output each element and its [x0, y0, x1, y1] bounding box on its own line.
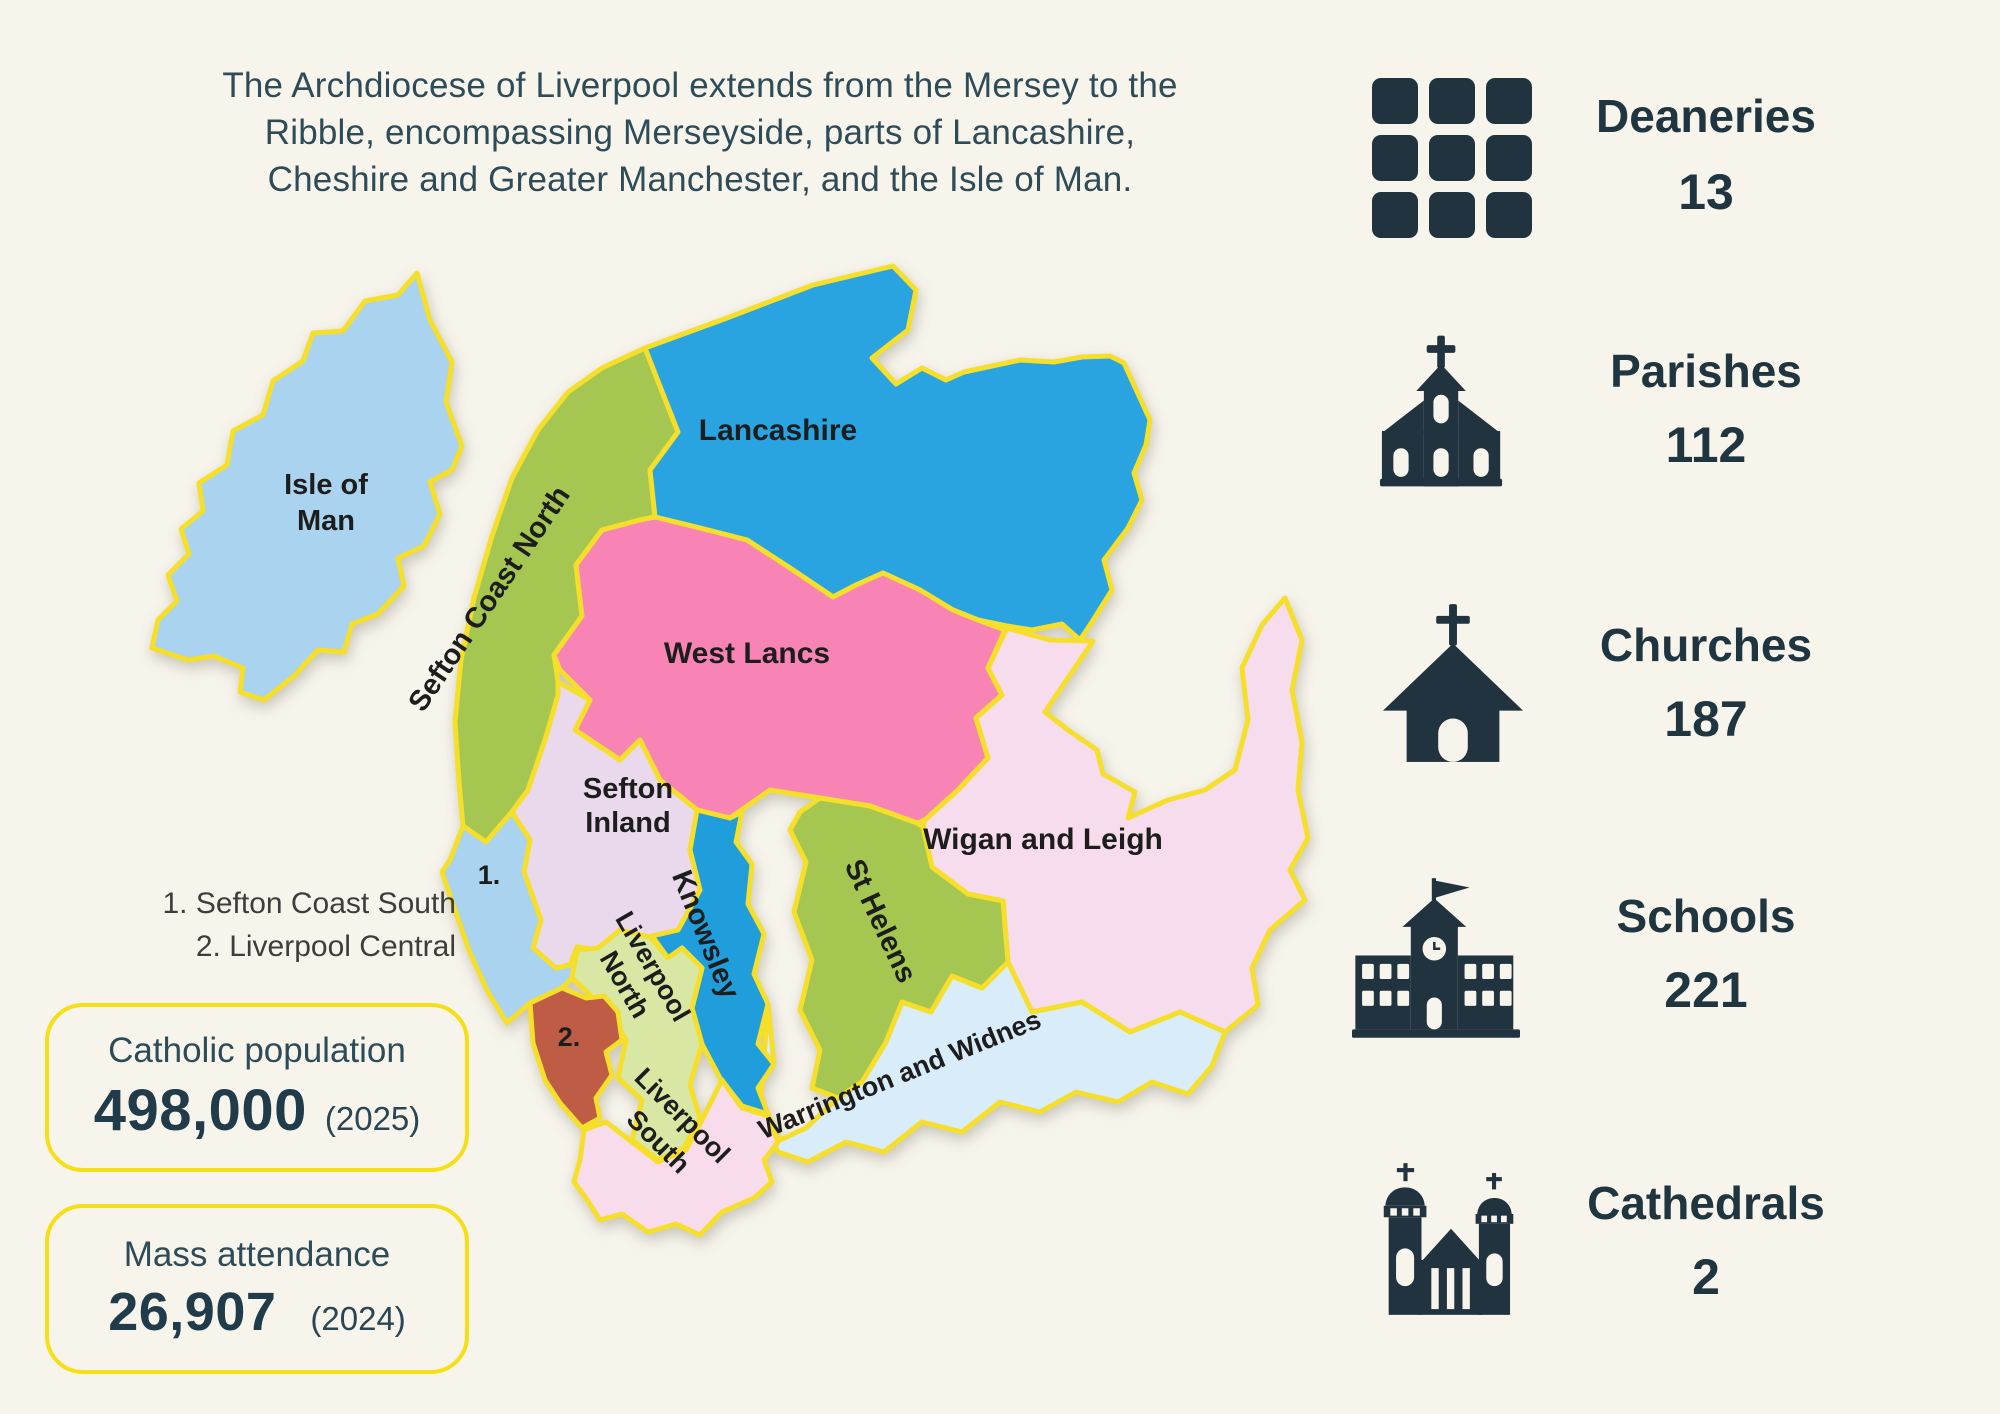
- label-sefton-inland-line2: Inland: [585, 807, 670, 839]
- grid-icon: [1372, 78, 1532, 238]
- stat-value-schools: 221: [1526, 964, 1886, 1016]
- label-west-lancs: West Lancs: [664, 637, 830, 670]
- intro-text-line1: The Archdiocese of Liverpool extends fro…: [120, 62, 1280, 109]
- intro-text-line3: Cheshire and Greater Manchester, and the…: [120, 156, 1280, 203]
- map-legend: 1. Sefton Coast South 2. Liverpool Centr…: [138, 882, 456, 968]
- label-isle-of-man-line1: Isle of: [284, 469, 368, 501]
- stat-label-churches: Churches: [1526, 620, 1886, 670]
- stat-label-schools: Schools: [1526, 891, 1886, 941]
- cathedral-icon: [1369, 1163, 1533, 1315]
- school-icon: [1352, 878, 1520, 1038]
- legend-sefton-coast-south: 1. Sefton Coast South: [138, 882, 456, 925]
- stat-value-deaneries: 13: [1526, 166, 1886, 218]
- mass-attendance-title: Mass attendance: [124, 1235, 391, 1275]
- parish-church-icon: [1380, 335, 1504, 487]
- catholic-population-title: Catholic population: [108, 1031, 406, 1071]
- stat-value-cathedrals: 2: [1526, 1251, 1886, 1303]
- stat-value-parishes: 112: [1526, 419, 1886, 471]
- label-sefton-inland-line1: Sefton: [583, 773, 673, 805]
- label-lancashire: Lancashire: [699, 414, 857, 447]
- mass-attendance-box: Mass attendance 26,907 (2024): [45, 1204, 469, 1374]
- mass-attendance-value: 26,907: [108, 1281, 276, 1343]
- intro-text-line2: Ribble, encompassing Merseyside, parts o…: [120, 109, 1280, 156]
- catholic-population-box: Catholic population 498,000 (2025): [45, 1003, 469, 1172]
- stat-value-churches: 187: [1526, 693, 1886, 745]
- marker-sefton-coast-south: 1.: [478, 860, 501, 890]
- legend-liverpool-central: 2. Liverpool Central: [138, 925, 456, 968]
- stat-label-parishes: Parishes: [1526, 346, 1886, 396]
- stat-label-deaneries: Deaneries: [1526, 91, 1886, 141]
- mass-attendance-year: (2024): [310, 1300, 405, 1338]
- marker-liverpool-central: 2.: [558, 1022, 581, 1052]
- label-isle-of-man-line2: Man: [297, 505, 355, 537]
- stat-label-cathedrals: Cathedrals: [1526, 1178, 1886, 1228]
- region-liverpool-central: [530, 988, 622, 1128]
- church-icon: [1379, 603, 1527, 763]
- catholic-population-value: 498,000: [94, 1077, 307, 1144]
- intro-text: The Archdiocese of Liverpool extends fro…: [120, 62, 1280, 203]
- label-wigan-and-leigh: Wigan and Leigh: [923, 823, 1163, 856]
- catholic-population-year: (2025): [325, 1100, 420, 1138]
